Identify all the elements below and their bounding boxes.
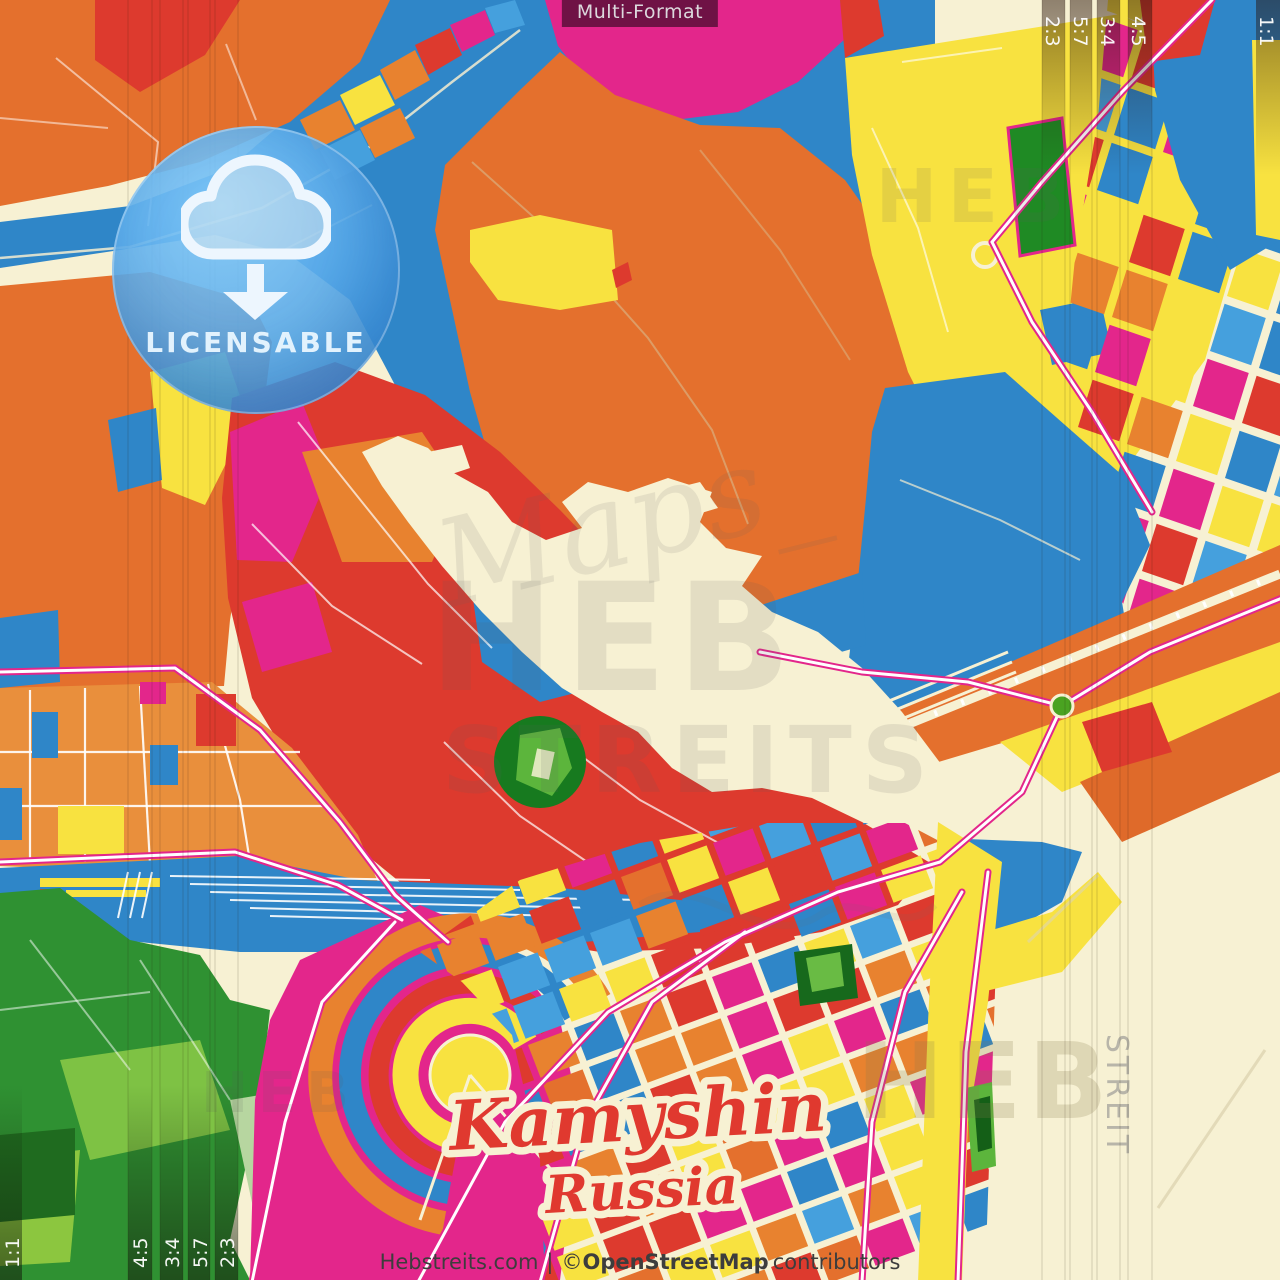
map-title-country: Russia (542, 1155, 740, 1226)
map-poster-preview: Maps_ HEB STREITS HEB STREIT HEB HEB Mul… (0, 0, 1280, 1280)
licensable-label: LICENSABLE (145, 326, 367, 359)
map-title-block: Kamyshin Russia (350, 1058, 930, 1258)
map-title-city: Kamyshin (445, 1067, 828, 1167)
crop-label-5-7: 5:7 (1069, 16, 1091, 47)
watermark-streit-vertical: STREIT (1099, 1034, 1134, 1156)
crop-label-1-1: 1:1 (1255, 16, 1277, 47)
crop-label-3-4: 3:4 (1096, 16, 1118, 47)
cloud-download-icon (181, 150, 331, 320)
licensable-badge: LICENSABLE (112, 126, 400, 414)
crop-label-2-3: 2:3 (1041, 16, 1063, 47)
footer-site: Hebstreits.com (380, 1250, 539, 1274)
footer-osm-link: OpenStreetMap (582, 1250, 768, 1274)
footer-copyright: © (561, 1250, 582, 1274)
format-chip: Multi-Format (562, 0, 718, 27)
footer-separator: | (546, 1250, 553, 1274)
footer-attribution: Hebstreits.com|©OpenStreetMapcontributor… (0, 1250, 1280, 1274)
footer-contributors: contributors (773, 1250, 901, 1274)
crop-label-4-5: 4:5 (1127, 16, 1149, 47)
watermark-heb: HEB (429, 552, 801, 726)
watermark-streits: STREITS (442, 707, 938, 814)
